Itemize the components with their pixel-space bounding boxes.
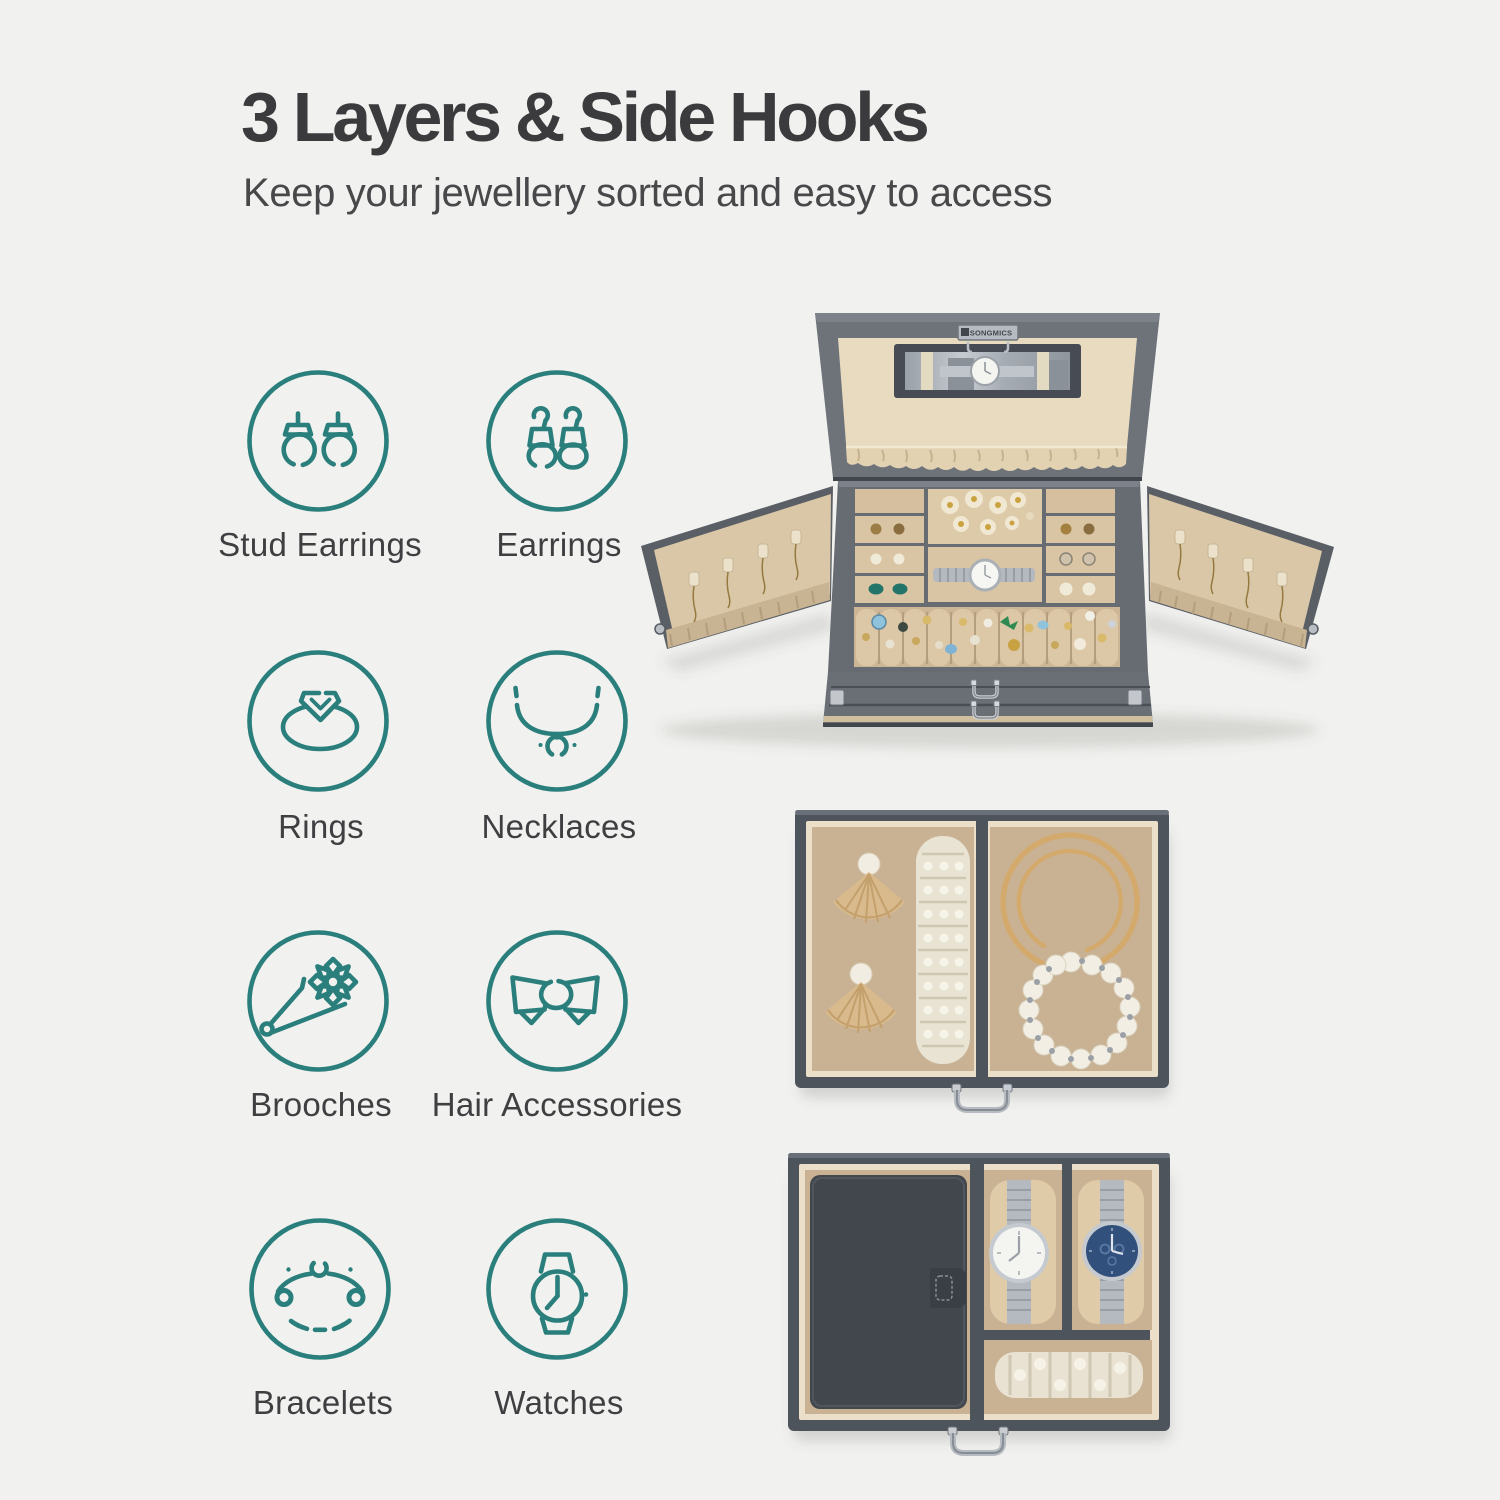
- svg-text:SONGMICS: SONGMICS: [970, 329, 1012, 338]
